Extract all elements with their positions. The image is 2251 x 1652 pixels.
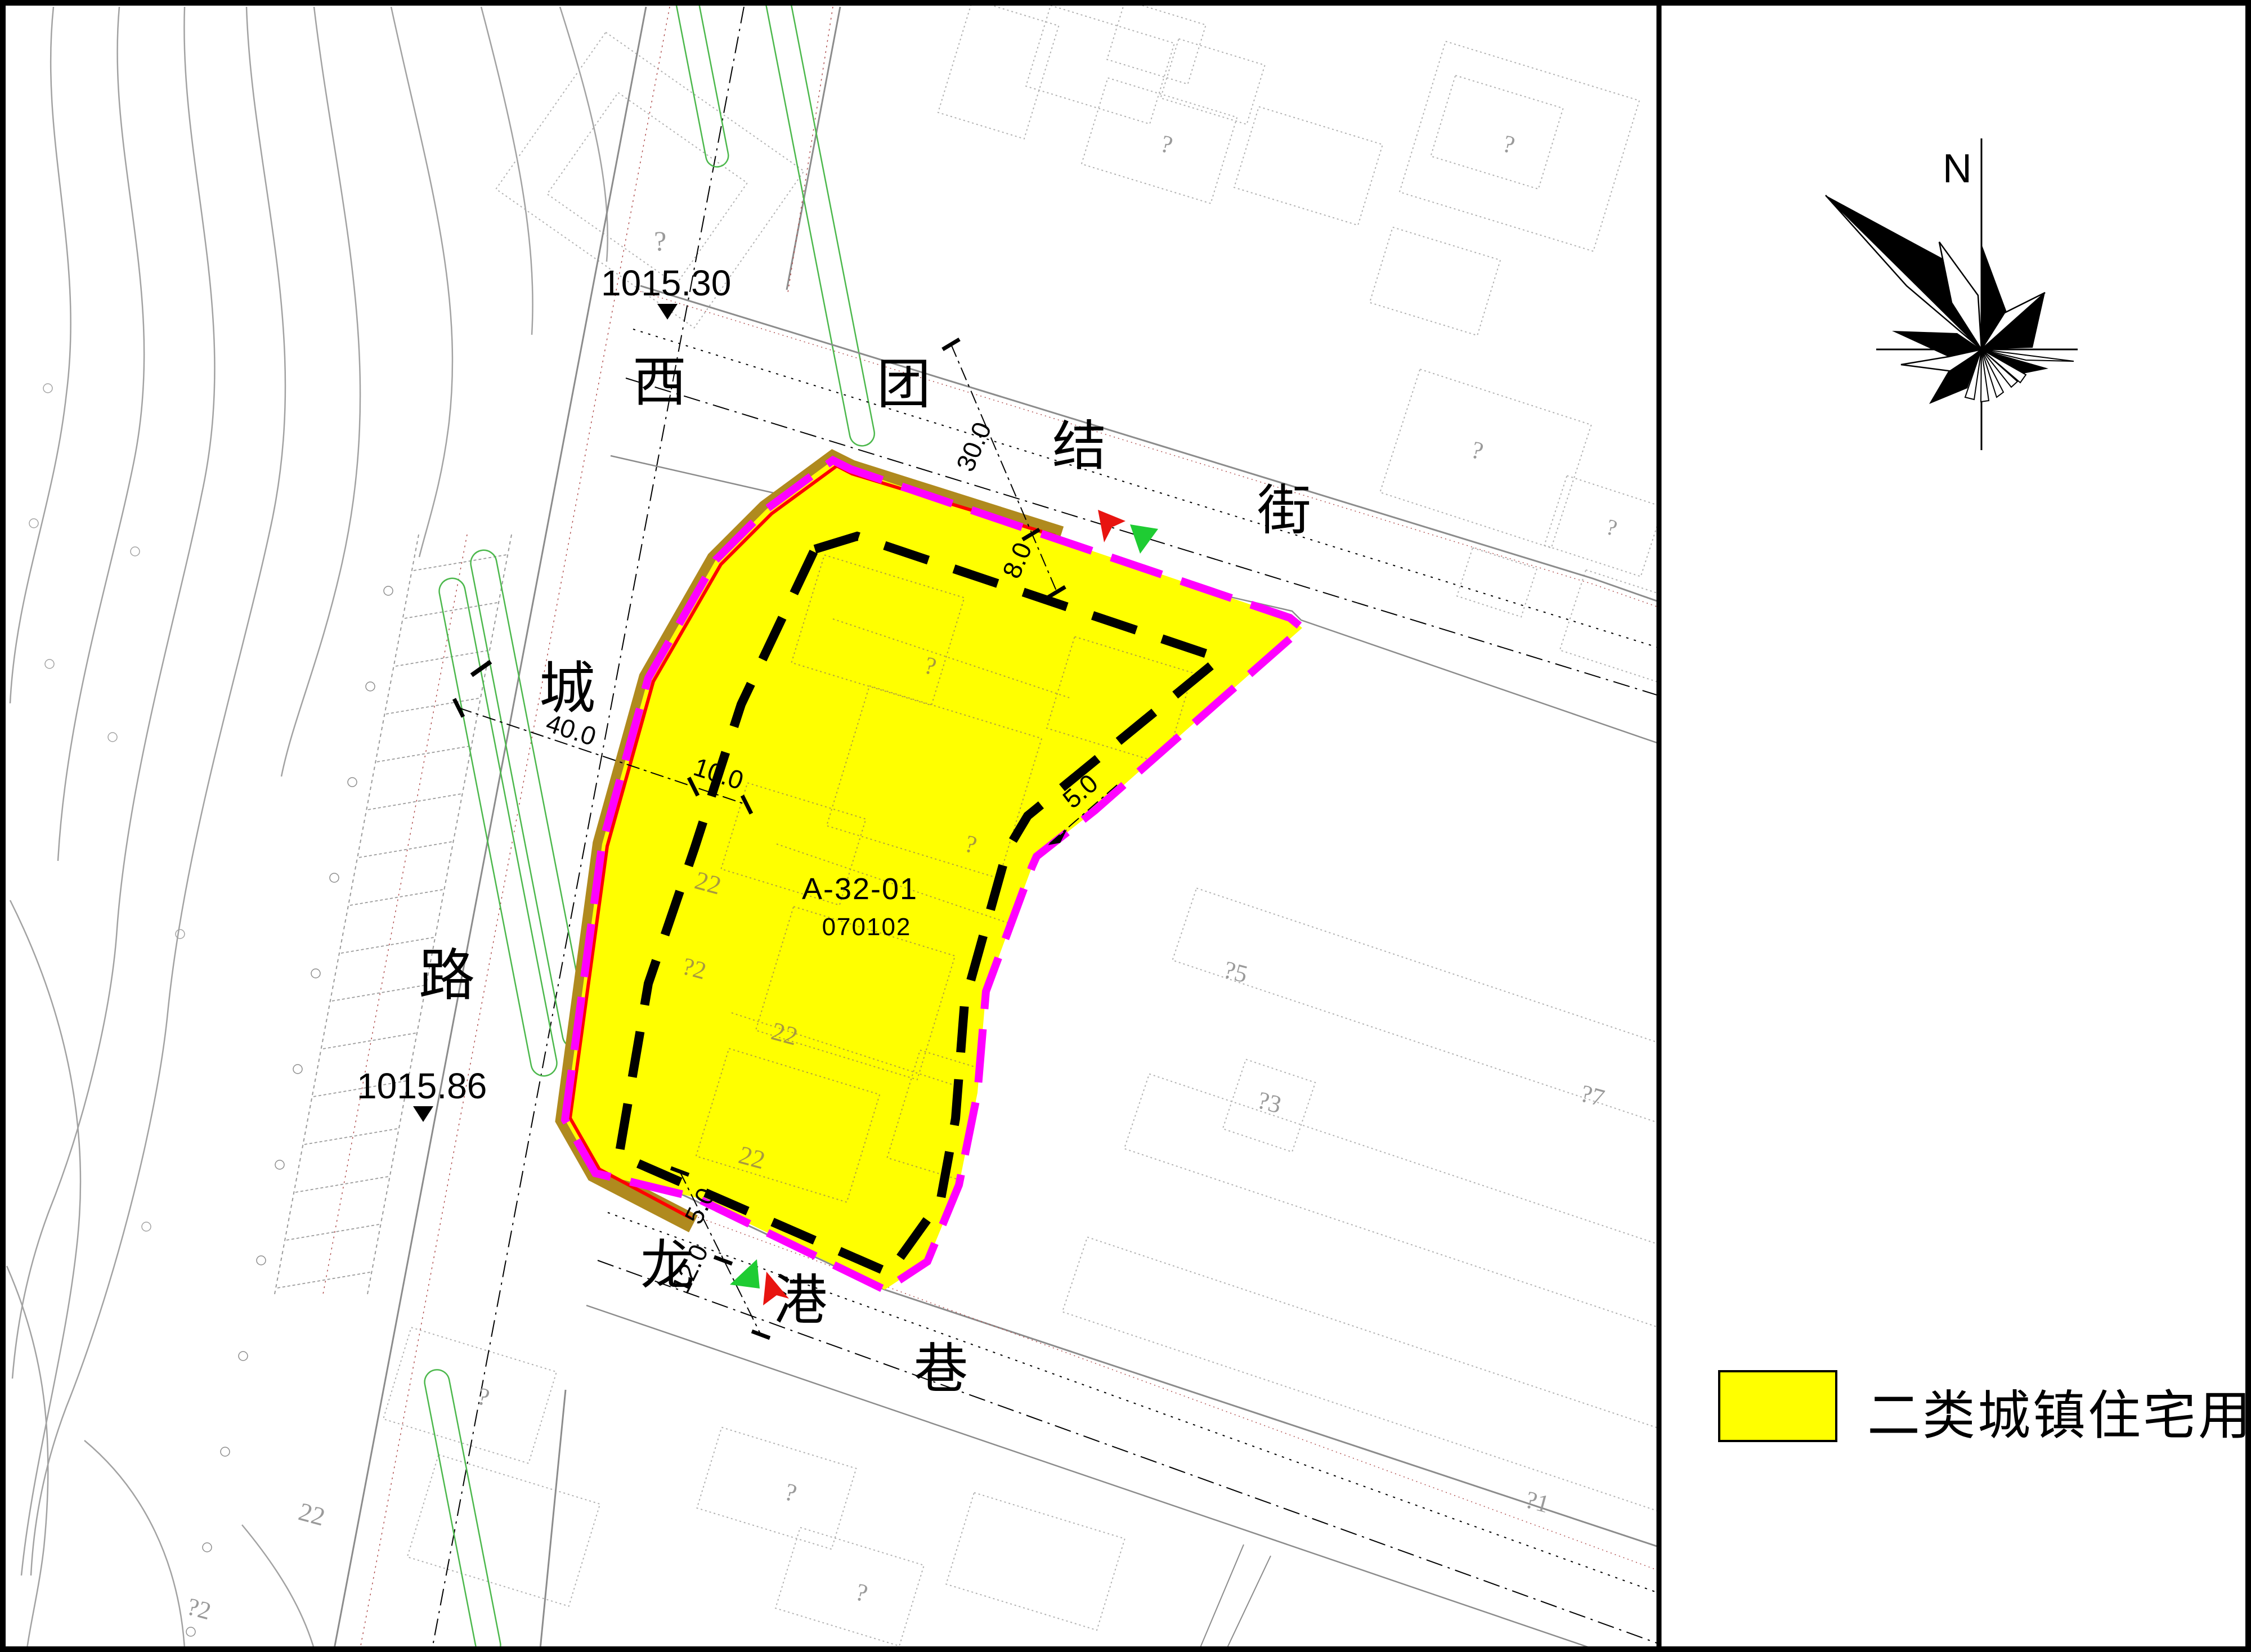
faint-glyph: ?	[782, 1478, 800, 1507]
faint-glyph: ?2	[184, 1592, 214, 1625]
faint-glyph: ?	[1158, 129, 1176, 159]
compass-north-label: N	[1943, 146, 1972, 191]
legend: 二类城镇住宅用地	[1719, 1371, 2251, 1445]
elevation-value: 1015.30	[601, 263, 731, 303]
planning-map-sheet: A-32-01 070102 30.0 8.0 40.0 10.0 5.0	[0, 0, 2251, 1652]
street-char: 团	[877, 354, 931, 415]
faint-glyph: ?	[1468, 436, 1486, 465]
elevation-value: 1015.86	[357, 1066, 487, 1106]
street-char: 巷	[914, 1339, 968, 1399]
street-char: 西	[633, 352, 687, 412]
road-longgang	[586, 1164, 1657, 1649]
faint-glyph: ?	[1604, 514, 1620, 541]
street-char: 街	[1257, 481, 1311, 541]
faint-glyph: ?1	[1522, 1485, 1552, 1518]
street-char: 路	[419, 945, 475, 1007]
parcel-a-32-01: A-32-01 070102	[565, 460, 1302, 1290]
legend-label: 二类城镇住宅用地	[1867, 1387, 2251, 1445]
dim-street-width-top: 30.0	[950, 418, 997, 475]
faint-glyph: ?	[474, 1382, 492, 1411]
access-arrow-green-icon	[730, 1259, 760, 1289]
compass-rose: N	[1826, 138, 2078, 450]
faint-glyph: ?5	[1221, 955, 1250, 988]
faint-glyph: ?	[654, 225, 666, 257]
street-char: 港	[773, 1271, 827, 1331]
access-arrow-green-icon	[1130, 524, 1158, 554]
access-arrow-red-icon	[1098, 510, 1125, 542]
faint-glyph: ?	[1500, 129, 1518, 159]
contour-lines	[7, 7, 608, 1649]
street-char: 龙	[640, 1236, 694, 1296]
street-char: 结	[1052, 416, 1106, 477]
parcel-subcode: 070102	[822, 913, 912, 941]
parcel-code: A-32-01	[802, 872, 918, 906]
map-canvas: A-32-01 070102 30.0 8.0 40.0 10.0 5.0	[0, 0, 2251, 1652]
faint-glyph: 22	[295, 1497, 328, 1531]
street-char: 城	[539, 658, 595, 720]
faint-glyph: ?	[853, 1578, 871, 1607]
legend-swatch	[1719, 1371, 1836, 1441]
faint-glyph: ?3	[1254, 1086, 1284, 1119]
faint-glyph: ?7	[1577, 1079, 1607, 1112]
benchmark-triangle-icon	[413, 1106, 433, 1122]
benchmark-triangle-icon	[657, 304, 678, 320]
